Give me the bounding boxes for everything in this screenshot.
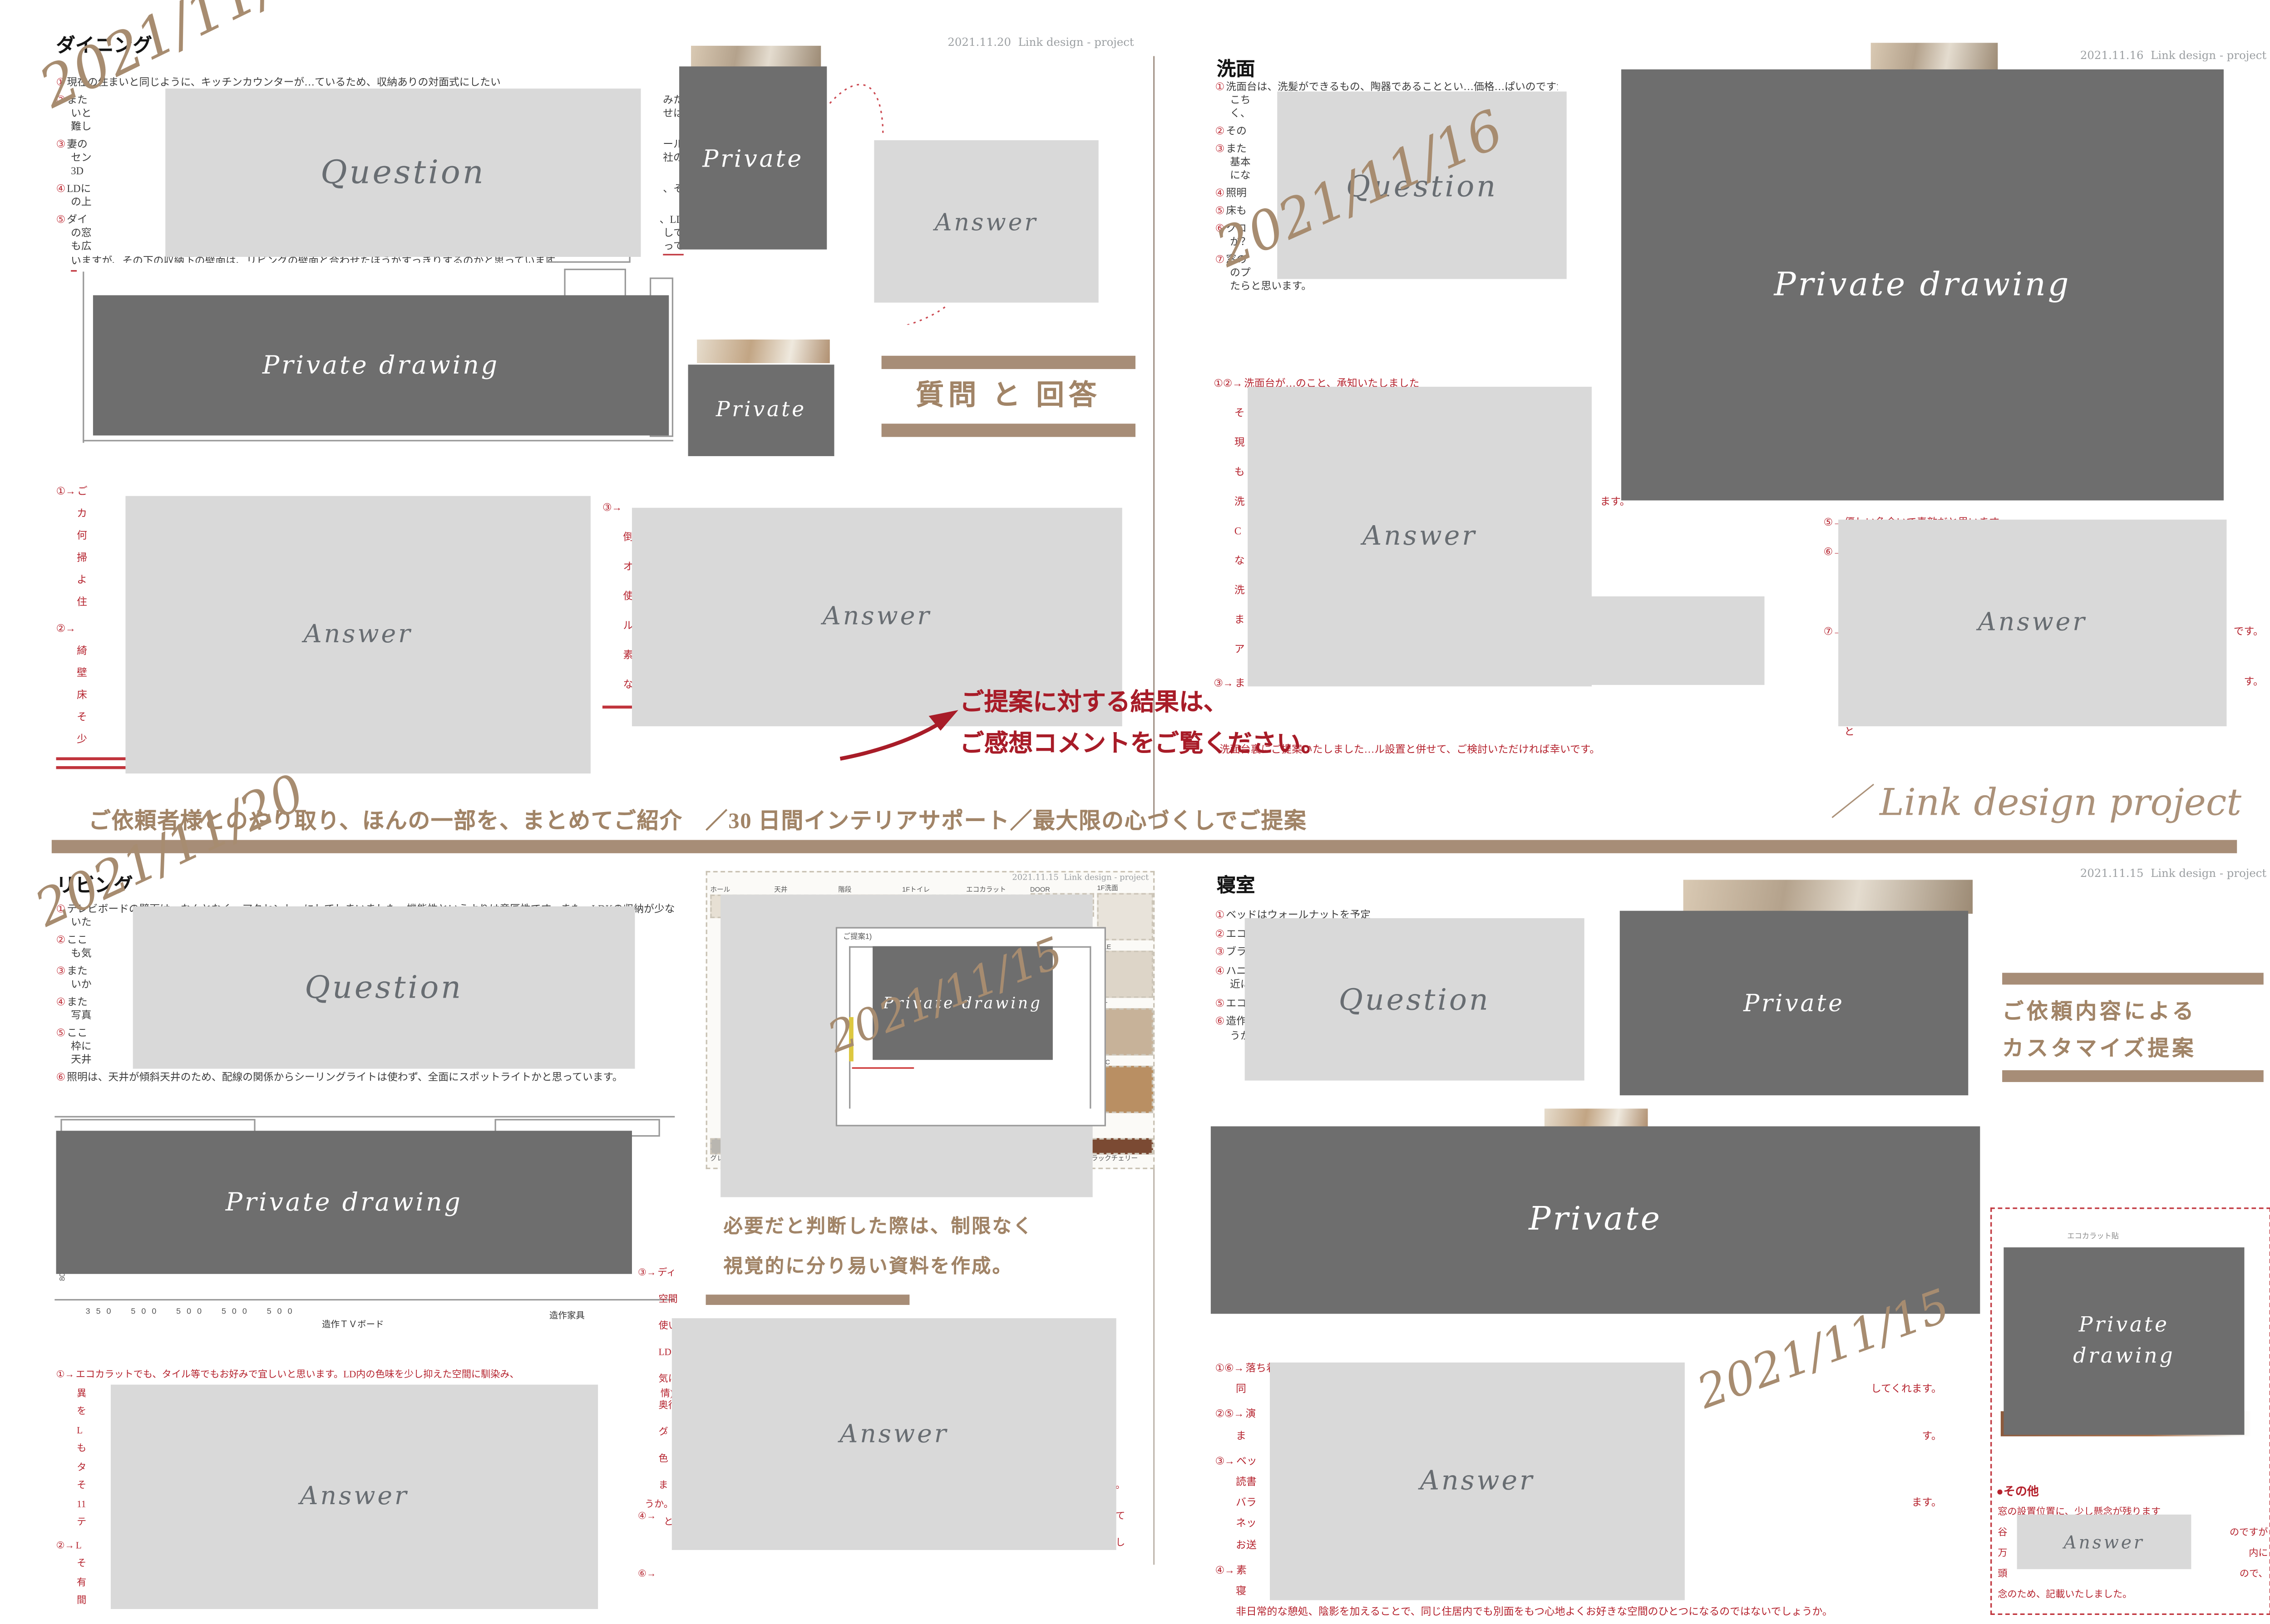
result-note-line1: ご提案に対する結果は、 [960, 682, 1228, 718]
presentation-sheet: ダイニング 2021.11.20 Link design - project ①… [0, 0, 2270, 1624]
dining-page-header: 2021.11.20 Link design - project [886, 35, 1134, 49]
answer-placeholder-label: Answer [823, 602, 932, 632]
moodboard-caption-2: 視覚的に分り易い資料を作成。 [724, 1250, 1013, 1279]
cad-line [54, 1116, 675, 1117]
text-line: ⑥→ [638, 1562, 1125, 1589]
private-placeholder-label: Private [716, 399, 806, 422]
qa-header-bar-bottom [882, 423, 1135, 437]
answer-placeholder-dining-left: Answer [125, 496, 590, 773]
text-line: 念のため、記載いたしました。 [1996, 1585, 2268, 1606]
answer-placeholder-label: Answer [1362, 521, 1477, 552]
question-placeholder-label: Question [321, 154, 486, 191]
band-brand-script: ／ Link design project [1831, 773, 2241, 827]
private-drawing-label: Private drawing [262, 350, 499, 380]
answer-placeholder-washroom-left: Answer [1248, 387, 1592, 686]
moodboard-caption-1: 必要だと判断した際は、制限なく [724, 1211, 1034, 1239]
band-bar [52, 840, 2237, 853]
photo-thumbnail [697, 340, 830, 363]
answer-placeholder-label: Answer [1420, 1466, 1535, 1497]
answer-placeholder-label: Answer [839, 1419, 948, 1449]
answer-placeholder-dining-top: Answer [874, 140, 1098, 303]
private-drawing-placeholder-dining: Private drawing [93, 295, 669, 435]
answer-placeholder-label: Answer [2064, 1531, 2145, 1552]
text-line: ①→エコカラットでも、タイル等でもお好みで宜しいと思います。LD内の色味を少し抑… [56, 1367, 673, 1386]
photo-thumbnail [1545, 1108, 1648, 1127]
washroom-header-brand: Link design - project [2151, 49, 2266, 62]
dining-header-date: 2021.11.20 [947, 35, 1011, 49]
private-placeholder-label: Private [1529, 1201, 1662, 1238]
question-placeholder-dining: Question [165, 89, 641, 257]
answer-placeholder-label: Answer [935, 207, 1038, 236]
cad-line [83, 271, 84, 443]
qa-header-bar-top [882, 356, 1135, 369]
answer-placeholder-label: Answer [304, 620, 413, 650]
washroom-page-header: 2021.11.16 Link design - project [2038, 49, 2266, 62]
customize-bar-bottom [2002, 1070, 2264, 1082]
bedroom-title: 寝室 [1217, 870, 1255, 898]
cad-label-tvboard: 造作ＴＶボード [322, 1317, 384, 1330]
private-drawing-label: Private drawing [226, 1187, 463, 1217]
text-line: たらと思います。 [1215, 281, 1558, 294]
moodboard-cell: ブラックチェリー [1085, 1138, 1150, 1163]
plan-accent-red [852, 1067, 914, 1068]
private-placeholder-label: Private [1743, 989, 1845, 1017]
private-drawing-label: Private drawing [2073, 1310, 2175, 1372]
side-note: エコカラット貼 [2067, 1231, 2119, 1241]
private-drawing-placeholder-side: Private drawing [2004, 1247, 2244, 1435]
washroom-header-date: 2021.11.16 [2080, 49, 2144, 62]
answer-placeholder-washroom-right: Answer [1838, 520, 2226, 726]
photo-thumbnail [1683, 880, 1973, 914]
bedroom-header-brand: Link design - project [2151, 866, 2266, 880]
question-placeholder-label: Question [1339, 982, 1490, 1017]
private-placeholder-label: Private [702, 144, 804, 172]
photo-thumbnail [691, 46, 821, 68]
moodboard-mini-date: 2021.11.15 [1012, 874, 1058, 883]
answer-placeholder-living-right: Answer [672, 1318, 1116, 1550]
others-title: ●その他 [1996, 1484, 2039, 1500]
text-line: 非日常的な憩処、陰影を加えることで、同じ住居内でも別面をもつ心地よくお好きな空間… [1215, 1602, 1942, 1623]
dining-header-brand: Link design - project [1018, 35, 1134, 49]
private-placeholder-bedroom-center: Private [1211, 1127, 1980, 1314]
private-placeholder-bedroom-right: Private [1620, 911, 1969, 1096]
customize-line-2: カスタマイズ提案 [2002, 1032, 2196, 1063]
answer-placeholder-living-left: Answer [111, 1385, 598, 1609]
bedroom-page-header: 2021.11.15 Link design - project [2038, 866, 2266, 880]
cad-line [54, 1299, 675, 1300]
private-placeholder-dining-2: Private [688, 364, 834, 456]
answer-placeholder-label: Answer [1978, 608, 2087, 638]
red-arrow-icon [819, 694, 967, 768]
floorplan-label: ご提案1) [843, 931, 872, 942]
cad-line [83, 440, 673, 441]
result-note-line2: ご感想コメントをご覧ください。 [960, 723, 1325, 759]
answer-placeholder-bedroom: Answer [1270, 1363, 1685, 1600]
customize-bar-top [2002, 973, 2264, 984]
customize-line-1: ご依頼内容による [2002, 995, 2196, 1026]
answer-placeholder-others: Answer [2017, 1515, 2191, 1569]
private-drawing-placeholder-washroom: Private drawing [1621, 69, 2224, 501]
qa-header-title: 質問 と 回答 [882, 374, 1135, 413]
question-placeholder-label: Question [305, 970, 463, 1005]
cad-dimension-row: 350 500 500 500 500 [86, 1305, 298, 1317]
answer-placeholder-washroom-step [1590, 596, 1765, 685]
moodboard-caption-bar [706, 1294, 910, 1305]
washroom-title: 洗面 [1217, 53, 1255, 81]
question-placeholder-living: Question [133, 906, 635, 1069]
moodboard-mini-header: 2021.11.15 Link design - project [1012, 874, 1149, 883]
answer-placeholder-label: Answer [300, 1482, 409, 1511]
cad-line [1090, 946, 1091, 1109]
question-placeholder-bedroom: Question [1245, 918, 1584, 1081]
bedroom-header-date: 2021.11.15 [2080, 866, 2144, 880]
private-drawing-placeholder-living: Private drawing [56, 1131, 632, 1274]
moodboard-mini-brand: Link design - project [1064, 874, 1149, 883]
cad-label-kagu: 造作家具 [549, 1308, 585, 1321]
text-line: ①現在の住まいと同じように、キッチンカウンターが…ているため、収納ありの対面式に… [56, 77, 684, 90]
private-drawing-label: Private drawing [1774, 266, 2071, 303]
private-placeholder-dining-1: Private [679, 66, 827, 249]
cad-label-80: 80 [59, 1273, 68, 1281]
